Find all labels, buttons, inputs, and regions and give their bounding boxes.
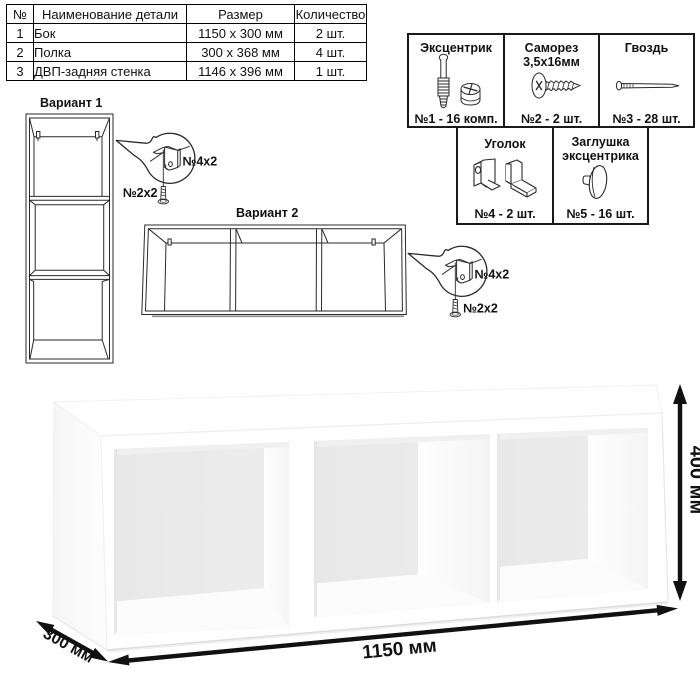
svg-text:Гвоздь: Гвоздь — [625, 41, 669, 55]
svg-text:№1 - 16 комп.: №1 - 16 комп. — [414, 112, 497, 126]
svg-text:№3 - 28 шт.: №3 - 28 шт. — [612, 112, 680, 126]
svg-text:№2х2: №2х2 — [463, 302, 498, 316]
svg-text:Уголок: Уголок — [484, 137, 526, 151]
svg-text:№5 - 16 шт.: №5 - 16 шт. — [566, 207, 634, 221]
svg-text:Заглушка: Заглушка — [571, 135, 630, 149]
svg-text:400 мм: 400 мм — [686, 446, 700, 515]
svg-text:Вариант 2: Вариант 2 — [236, 206, 298, 220]
svg-text:№4х2: №4х2 — [182, 155, 217, 169]
svg-text:Вариант 1: Вариант 1 — [40, 96, 102, 110]
svg-text:№2х2: №2х2 — [123, 186, 158, 200]
svg-text:№2 - 2 шт.: №2 - 2 шт. — [521, 112, 582, 126]
svg-text:Эксцентрик: Эксцентрик — [420, 41, 493, 55]
svg-text:№4х2: №4х2 — [474, 268, 509, 282]
svg-text:1150 мм: 1150 мм — [361, 635, 437, 663]
svg-text:№4 - 2 шт.: №4 - 2 шт. — [474, 207, 535, 221]
svg-text:эксцентрика: эксцентрика — [562, 149, 640, 163]
svg-text:Саморез: Саморез — [525, 41, 579, 55]
svg-text:3,5х16мм: 3,5х16мм — [523, 55, 580, 69]
